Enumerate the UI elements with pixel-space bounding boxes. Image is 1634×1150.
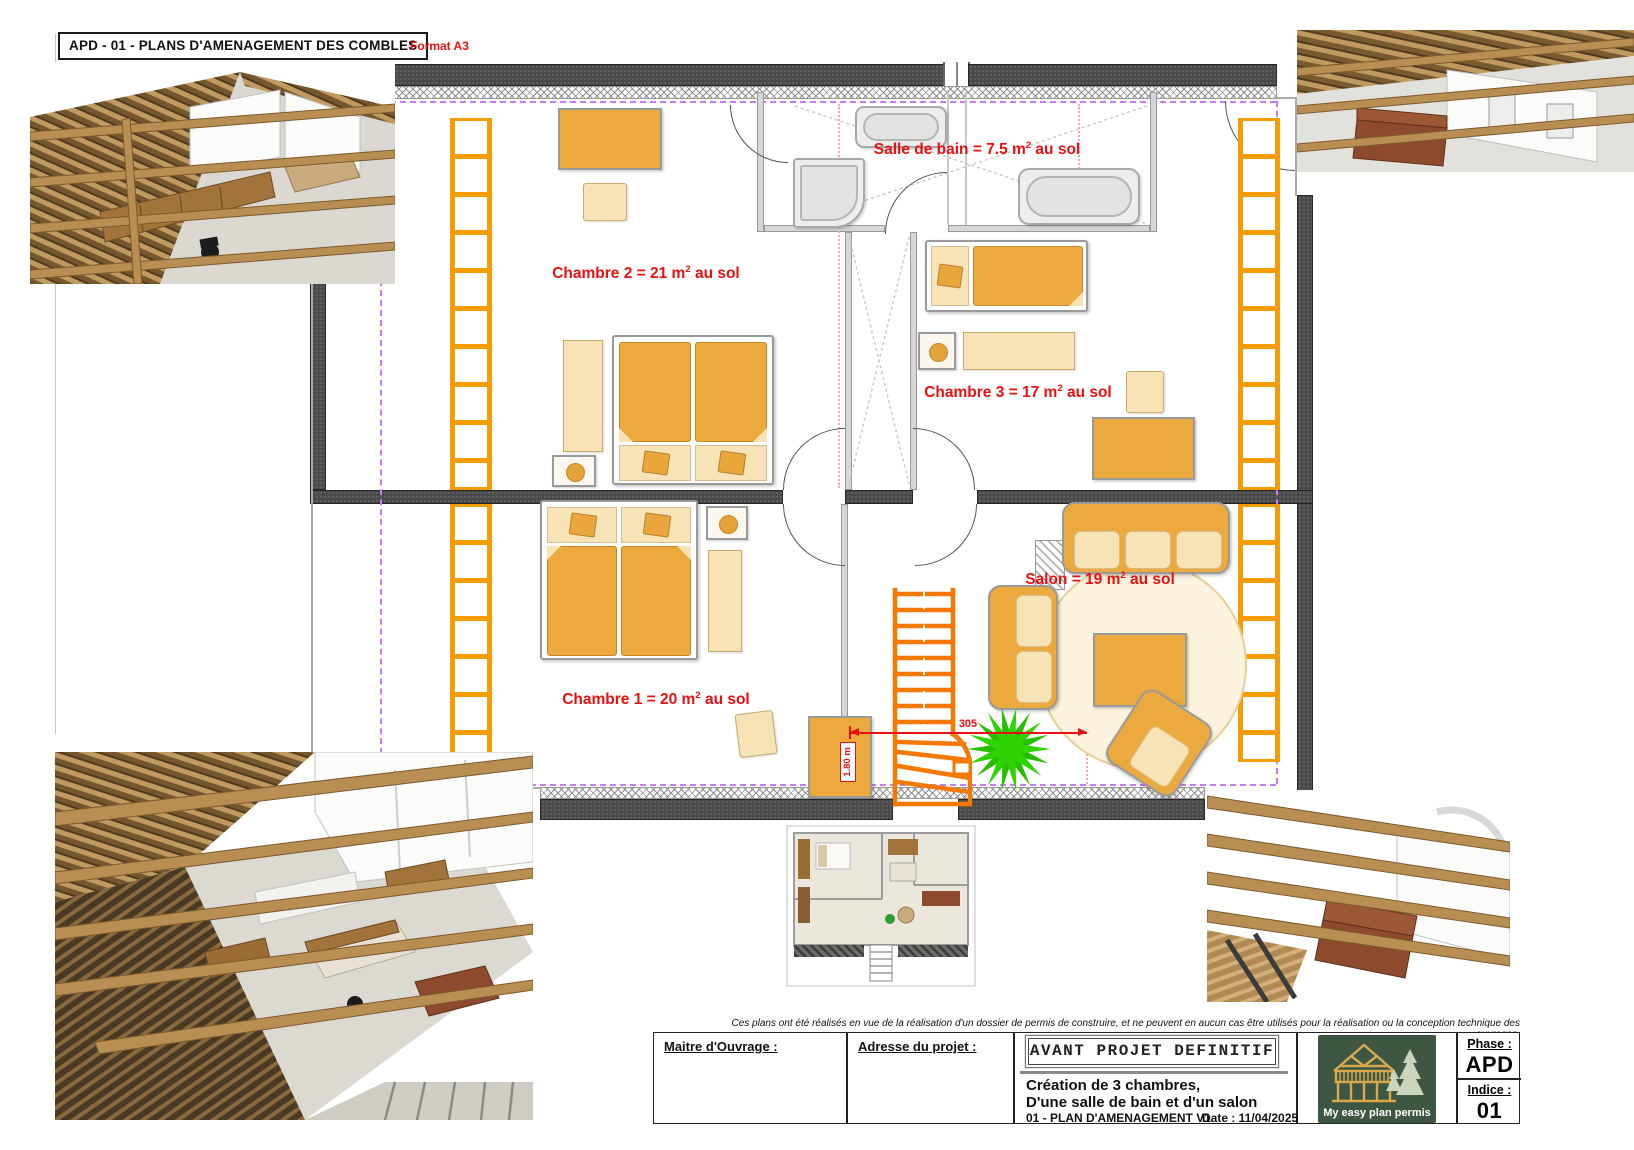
- dimension-arrow-right: [1078, 728, 1087, 736]
- render-3d-top-left: [30, 62, 395, 284]
- wardrobe-chambre3: [1092, 417, 1195, 480]
- logo-text: My easy plan permis: [1323, 1107, 1431, 1119]
- rug-chambre2: [563, 340, 603, 452]
- label-chambre3: Chambre 3 = 17 m2 au sol: [898, 383, 1138, 402]
- label-text: au sol: [1126, 571, 1175, 588]
- door-arc-chambre1: [783, 504, 845, 566]
- pillow-strip: [547, 507, 617, 543]
- mattress: [973, 246, 1083, 306]
- cushion: [1016, 595, 1052, 647]
- roof-ladder-left-upper: [450, 118, 492, 490]
- label-salon: Salon = 19 m2 au sol: [980, 570, 1220, 589]
- pillow: [643, 512, 672, 537]
- shower: [793, 158, 865, 228]
- door-arc-corridor: [730, 105, 788, 163]
- render-3d-top-right: [1297, 30, 1634, 172]
- phase-title-box: AVANT PROJET DEFINITIF: [1028, 1038, 1276, 1065]
- sheet-fold: [753, 428, 767, 442]
- bed-chambre3: [925, 240, 1088, 312]
- dimension-width-value: 305: [938, 718, 998, 730]
- nightstand-chambre1: [706, 506, 748, 540]
- label-text: Salle de bain = 7.5 m: [874, 141, 1026, 158]
- door-arc-salon: [915, 504, 977, 566]
- sofa-salon-top: [1062, 502, 1230, 574]
- pillow-strip: [619, 445, 691, 481]
- sheet-fold: [547, 546, 561, 560]
- chimney-duct: [943, 62, 970, 88]
- sheet-title: APD - 01 - PLANS D'AMENAGEMENT DES COMBL…: [69, 38, 417, 53]
- label-text: au sol: [691, 265, 740, 282]
- dimension-line: [850, 732, 1087, 734]
- mattress: [621, 546, 691, 656]
- lamp: [566, 463, 585, 482]
- mattress: [619, 342, 691, 442]
- address-label: Adresse du projet :: [858, 1039, 976, 1054]
- label-text: au sol: [1031, 141, 1080, 158]
- stool-chambre2: [583, 183, 627, 221]
- plan-sheet: APD - 01 - PLANS D'AMENAGEMENT DES COMBL…: [0, 0, 1634, 1150]
- dimension-height-value: 1.80 m: [840, 742, 856, 782]
- nightstand-chambre2: [552, 455, 596, 487]
- pillow: [642, 450, 671, 475]
- sheet-fold: [619, 428, 633, 442]
- divider: [1296, 1033, 1298, 1123]
- wall-bottom-right: [958, 799, 1205, 820]
- phase-value: APD: [1458, 1052, 1521, 1078]
- cushion: [1074, 531, 1120, 569]
- pillow-strip: [695, 445, 767, 481]
- pillow-strip: [931, 246, 969, 306]
- title-block: Maitre d'Ouvrage : Adresse du projet : A…: [653, 1032, 1520, 1124]
- divider: [846, 1033, 848, 1123]
- render-3d-bottom-right: [1207, 790, 1510, 1002]
- cushion: [1127, 724, 1192, 789]
- label-chambre1: Chambre 1 = 20 m2 au sol: [536, 690, 776, 709]
- pillow-strip: [621, 507, 691, 543]
- dimension-arrow-left: [850, 728, 859, 736]
- wall-top-right: [968, 64, 1277, 86]
- date-label: Date : 11/04/2025: [1202, 1111, 1298, 1125]
- render-3d-floor-top-view: [786, 825, 976, 987]
- bed-chambre1: [540, 500, 698, 660]
- cushion: [1125, 531, 1171, 569]
- wall-top-left: [378, 64, 945, 86]
- format-label: Format A3: [410, 39, 469, 53]
- project-description-line1: Création de 3 chambres,: [1026, 1077, 1200, 1094]
- dimension-tick: [849, 726, 851, 739]
- rug-chambre1: [708, 550, 742, 652]
- roof-ladder-left-lower: [450, 504, 492, 766]
- mattress: [547, 546, 617, 656]
- label-text: au sol: [701, 691, 750, 708]
- indice-value: 01: [1458, 1098, 1521, 1124]
- label-text: Salon = 19 m: [1025, 571, 1120, 588]
- staircase: [890, 586, 972, 808]
- label-salle-de-bain: Salle de bain = 7.5 m2 au sol: [852, 140, 1102, 159]
- wardrobe-chambre2: [558, 108, 662, 170]
- label-text: Chambre 2 = 21 m: [552, 265, 685, 282]
- company-logo: My easy plan permis: [1318, 1035, 1436, 1123]
- sofa-salon-left: [988, 585, 1058, 710]
- indice-label: Indice :: [1458, 1083, 1521, 1097]
- sheet-title-box: APD - 01 - PLANS D'AMENAGEMENT DES COMBL…: [58, 32, 428, 60]
- roof-ladder-right-upper: [1238, 118, 1280, 490]
- rug-chambre3: [963, 332, 1075, 370]
- lamp: [929, 343, 948, 362]
- wall-bottom-left: [540, 799, 893, 820]
- insulation-hatch-bottom: [540, 787, 1205, 799]
- stool-chambre1: [734, 710, 777, 758]
- owner-label: Maitre d'Ouvrage :: [664, 1039, 778, 1054]
- boundary-line-topright: [1277, 97, 1297, 99]
- label-text: Chambre 1 = 20 m: [562, 691, 695, 708]
- label-text: au sol: [1063, 384, 1112, 401]
- rule: [1020, 1071, 1288, 1074]
- bathtub: [1018, 168, 1140, 225]
- mattress: [695, 342, 767, 442]
- sheet-fold: [677, 546, 691, 560]
- plan-reference: 01 - PLAN D'AMENAGEMENT V1: [1026, 1111, 1211, 1125]
- render-3d-bottom-left: [55, 752, 533, 1120]
- nightstand-chambre3: [918, 332, 956, 370]
- divider: [1456, 1078, 1521, 1080]
- pillow: [937, 263, 964, 288]
- lamp: [719, 515, 738, 534]
- pillow: [569, 512, 598, 537]
- sheet-fold: [1069, 292, 1083, 306]
- divider: [1013, 1033, 1015, 1123]
- project-description-line2: D'une salle de bain et d'un salon: [1026, 1094, 1257, 1111]
- roof-ladder-right-lower: [1238, 504, 1280, 762]
- cushion: [1016, 651, 1052, 703]
- pillow: [718, 450, 747, 475]
- label-text: Chambre 3 = 17 m: [924, 384, 1057, 401]
- bed-chambre2: [612, 335, 774, 485]
- label-chambre2: Chambre 2 = 21 m2 au sol: [526, 264, 766, 283]
- cushion: [1176, 531, 1222, 569]
- phase-label: Phase :: [1458, 1037, 1521, 1051]
